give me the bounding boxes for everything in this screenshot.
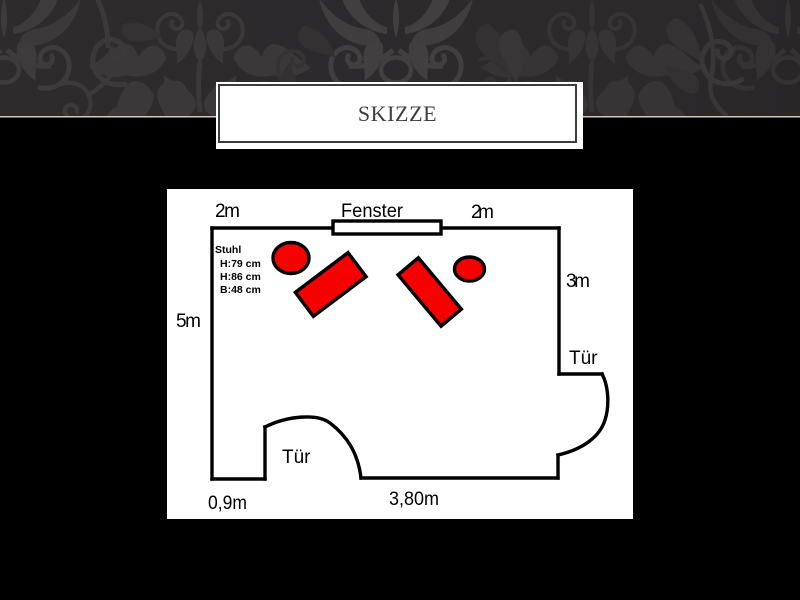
- svg-text:B:48 cm: B:48 cm: [220, 284, 261, 296]
- svg-text:Fenster: Fenster: [341, 201, 404, 222]
- svg-text:3m: 3m: [566, 271, 590, 292]
- svg-text:Tür: Tür: [282, 447, 311, 468]
- svg-text:H:79 cm: H:79 cm: [220, 258, 261, 270]
- svg-text:2m: 2m: [215, 201, 240, 222]
- svg-text:Tür: Tür: [569, 348, 598, 369]
- svg-text:5m: 5m: [176, 311, 201, 332]
- svg-text:2m: 2m: [471, 202, 494, 223]
- svg-text:H:86 cm: H:86 cm: [220, 271, 261, 283]
- svg-text:3,80m: 3,80m: [389, 489, 439, 510]
- svg-text:0,9m: 0,9m: [208, 493, 247, 514]
- svg-text:Stuhl: Stuhl: [215, 244, 241, 256]
